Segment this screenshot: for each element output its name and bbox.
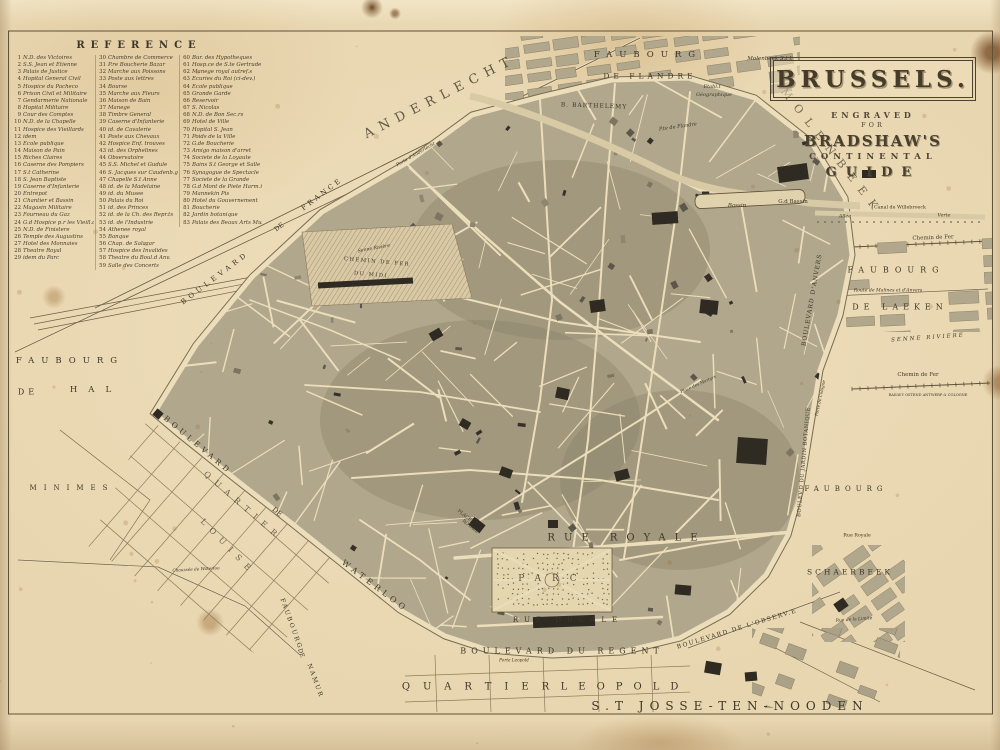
legend-item-number: 31 — [97, 62, 106, 69]
legend-item: 46S. Jacques sur Caudenb.g — [97, 170, 178, 177]
legend-item-number: 32 — [97, 69, 106, 76]
legend-item-label: Chap. de Salazar — [108, 241, 155, 248]
legend-item: 75Bains S.t George et Salle — [181, 162, 262, 169]
legend-item-label: Hospice du Pacheco — [23, 84, 78, 91]
legend-item-label: Magasin Militaire — [23, 205, 72, 212]
legend-item: 4Hopital General Civil — [12, 76, 94, 83]
legend-item-label: Theatre Royal — [23, 248, 61, 255]
legend-item-number: 59 — [97, 263, 106, 270]
legend-item: 80Hotel du Gouvernement — [181, 198, 262, 205]
legend-item-label: Hospice des Vieillards — [23, 127, 84, 134]
legend-item: 27Hotel des Monnaies — [12, 241, 94, 248]
legend-item-number: 56 — [97, 241, 106, 248]
brussels-map-scan: ANDERLECHTFAUBOURGDE FLANDREMolenbeek S.… — [0, 0, 1000, 750]
legend-item-label: Maison de Pain — [23, 148, 65, 155]
legend-item: 71Poids de la Ville — [181, 134, 262, 141]
legend-item-number: 55 — [97, 234, 106, 241]
legend-item: 30Chambre de Commerce — [97, 55, 178, 62]
legend-item-label: Marche aux Fleurs — [108, 91, 160, 98]
legend-item-number: 75 — [181, 162, 190, 169]
legend-item: 38Timbre General — [97, 112, 178, 119]
legend-item: 78G.d Mont de Piete Harm.ie — [181, 184, 262, 191]
legend-item: 20Entrepot — [12, 191, 94, 198]
legend-item: 83Palais des Beaux Arts Musee — [181, 220, 262, 227]
legend-item-number: 77 — [181, 177, 190, 184]
legend-item-label: Athenee royal — [108, 227, 146, 234]
legend-item-label: S.S. Jean et Etienne — [23, 62, 77, 69]
legend-item-number: 41 — [97, 134, 106, 141]
legend-item-number: 27 — [12, 241, 21, 248]
legend-item: 54Athenee royal — [97, 227, 178, 234]
legend-item: 18S. Jean Baptiste — [12, 177, 94, 184]
legend-item-number: 12 — [12, 134, 21, 141]
legend-item: 1N.D. des Victoires — [12, 55, 94, 62]
legend-item: 8Hopital Militaire — [12, 105, 94, 112]
legend-item-number: 15 — [12, 155, 21, 162]
legend-item: 66Reservoir — [181, 98, 262, 105]
legend-item-label: Caserne d'Infanterie — [23, 184, 79, 191]
legend-item-number: 16 — [12, 162, 21, 169]
legend-item-label: Temple des Augustins — [23, 234, 83, 241]
legend-item-number: 51 — [97, 205, 106, 212]
legend-item-number: 35 — [97, 91, 106, 98]
legend-item-label: Prison Civil et Militaire — [23, 91, 87, 98]
legend-item-label: id. de Cavalerie — [108, 127, 151, 134]
legend-item-number: 29 — [12, 255, 21, 262]
legend-item: 79Mannekin Pis — [181, 191, 262, 198]
legend-item: 49id. du Musee — [97, 191, 178, 198]
legend-item-number: 30 — [97, 55, 106, 62]
legend-item-number: 49 — [97, 191, 106, 198]
legend-item-number: 9 — [12, 112, 21, 119]
legend-item-label: N.D. de Finistere — [23, 227, 70, 234]
legend-item-number: 57 — [97, 248, 106, 255]
legend-item-number: 46 — [97, 170, 106, 177]
legend-item-number: 37 — [97, 105, 106, 112]
legend-item-label: Theatre du Boul.d Anv. — [108, 255, 171, 262]
legend-item-number: 78 — [181, 184, 190, 191]
legend-item-number: 83 — [181, 220, 190, 227]
legend-item: 52id. de la Ch. des Repr.ts — [97, 212, 178, 219]
legend-item-number: 10 — [12, 119, 21, 126]
legend-item: 42Hospice Enf. trouves — [97, 141, 178, 148]
legend-item-label: Marche aux Poissons — [108, 69, 166, 76]
legend-item-label: Synagogue de Spectacle — [192, 170, 259, 177]
legend-item-label: Palais des Beaux Arts Musee — [192, 220, 262, 227]
legend-item: 34Bourse — [97, 84, 178, 91]
legend-column-1: 1N.D. des Victoires2S.S. Jean et Etienne… — [11, 55, 95, 263]
reference-legend: REFERENCE 1N.D. des Victoires2S.S. Jean … — [11, 37, 261, 270]
legend-item: 36Maison de Bain — [97, 98, 178, 105]
legend-item: 12idem — [12, 134, 94, 141]
legend-item-number: 43 — [97, 148, 106, 155]
legend-item-label: Hosp.ce de S.te Gertrude — [192, 62, 261, 69]
legend-item-number: 38 — [97, 112, 106, 119]
legend-item-number: 64 — [181, 84, 190, 91]
legend-item: 14Maison de Pain — [12, 148, 94, 155]
legend-item-label: Hotel du Gouvernement — [192, 198, 258, 205]
legend-item-number: 65 — [181, 91, 190, 98]
legend-item: 60Bur. des Hypotheques — [181, 55, 262, 62]
legend-item-number: 18 — [12, 177, 21, 184]
legend-item-label: Banque — [108, 234, 129, 241]
legend-item-label: Mannekin Pis — [192, 191, 229, 198]
legend-item-label: N.D. de Bon Sec.rs — [192, 112, 243, 119]
legend-item-number: 61 — [181, 62, 190, 69]
legend-item: 68N.D. de Bon Sec.rs — [181, 112, 262, 119]
legend-item-label: Jardin botanique — [192, 212, 238, 219]
legend-item-label: Caserne des Pompiers — [23, 162, 84, 169]
title-continental: CONTINENTAL — [768, 152, 978, 162]
legend-item: 53id. de l'Industrie — [97, 220, 178, 227]
legend-item-number: 7 — [12, 98, 21, 105]
legend-item-number: 79 — [181, 191, 190, 198]
legend-item-number: 72 — [181, 141, 190, 148]
legend-item-label: Bur. des Hypotheques — [192, 55, 252, 62]
legend-item: 28Theatre Royal — [12, 248, 94, 255]
legend-item-number: 19 — [12, 184, 21, 191]
legend-item-number: 20 — [12, 191, 21, 198]
legend-item-label: Hotel des Monnaies — [23, 241, 77, 248]
legend-item: 9Cour des Comptes — [12, 112, 94, 119]
legend-item-number: 69 — [181, 119, 190, 126]
legend-item-label: Entrepot — [23, 191, 47, 198]
legend-item: 69Hotel de Ville — [181, 119, 262, 126]
legend-item-label: Manege — [108, 105, 130, 112]
legend-item-label: idem du Parc — [23, 255, 59, 262]
legend-item: 6Prison Civil et Militaire — [12, 91, 94, 98]
legend-item-label: S. Nicolas — [192, 105, 219, 112]
legend-item-number: 28 — [12, 248, 21, 255]
legend-item-label: Gendarmerie Nationale — [23, 98, 87, 105]
legend-item: 23Fourneau du Gaz — [12, 212, 94, 219]
legend-item-label: Hopital S. Jean — [192, 127, 233, 134]
legend-item-label: G.de Boucherie — [192, 141, 234, 148]
legend-item-label: Amigo maison d'arret — [192, 148, 251, 155]
legend-item: 11Hospice des Vieillards — [12, 127, 94, 134]
map-title-frame: BRUSSELS. — [773, 60, 973, 98]
legend-item: 51id. des Princes — [97, 205, 178, 212]
legend-item: 55Banque — [97, 234, 178, 241]
legend-item-label: Ecole publique — [192, 84, 233, 91]
legend-item-label: Timbre General — [108, 112, 151, 119]
legend-item-label: Manege royal autref.s — [192, 69, 252, 76]
legend-item-number: 24 — [12, 220, 21, 227]
legend-item: 57Hospice des Invalides — [97, 248, 178, 255]
title-engraved: ENGRAVED — [768, 110, 978, 120]
legend-item-label: Hospice Enf. trouves — [108, 141, 165, 148]
legend-item-number: 81 — [181, 205, 190, 212]
legend-item-label: id. de la Madelaine — [108, 184, 160, 191]
legend-item-label: S. Jacques sur Caudenb.g — [108, 170, 178, 177]
legend-item: 40id. de Cavalerie — [97, 127, 178, 134]
legend-item: 82Jardin botanique — [181, 212, 262, 219]
legend-item: 72G.de Boucherie — [181, 141, 262, 148]
legend-item: 76Synagogue de Spectacle — [181, 170, 262, 177]
legend-item: 64Ecole publique — [181, 84, 262, 91]
legend-item-number: 44 — [97, 155, 106, 162]
legend-item: 3Palais de Justice — [12, 69, 94, 76]
legend-item-label: id. des Orphelines — [108, 148, 158, 155]
legend-item-number: 42 — [97, 141, 106, 148]
map-title: BRUSSELS. — [776, 66, 970, 93]
legend-item: 24G.d Hospice p.r les Vieill.ds — [12, 220, 94, 227]
legend-item: 47Chapelle S.t Anne — [97, 177, 178, 184]
legend-column-3: 60Bur. des Hypotheques61Hosp.ce de S.te … — [179, 55, 263, 227]
legend-item-number: 40 — [97, 127, 106, 134]
legend-item: 77Societe de la Grande — [181, 177, 262, 184]
legend-item-number: 47 — [97, 177, 106, 184]
legend-item-number: 25 — [12, 227, 21, 234]
legend-item: 81Boucherie — [181, 205, 262, 212]
legend-item-label: Bains S.t George et Salle — [192, 162, 260, 169]
legend-item-label: Hospice des Invalides — [108, 248, 168, 255]
legend-item-number: 53 — [97, 220, 106, 227]
legend-item-label: Riches Claires — [23, 155, 62, 162]
legend-item-label: N.D. de la Chapelle — [23, 119, 76, 126]
legend-item-number: 11 — [12, 127, 21, 134]
legend-item: 62Manege royal autref.s — [181, 69, 262, 76]
legend-item-label: S. Jean Baptiste — [23, 177, 66, 184]
title-bradshaws: BRADSHAW'S — [768, 132, 978, 150]
legend-item-label: Reservoir — [192, 98, 218, 105]
legend-item-number: 22 — [12, 205, 21, 212]
legend-item: 35Marche aux Fleurs — [97, 91, 178, 98]
title-guide: GUIDE — [768, 165, 978, 180]
legend-item-number: 80 — [181, 198, 190, 205]
legend-item-number: 52 — [97, 212, 106, 219]
legend-item: 19Caserne d'Infanterie — [12, 184, 94, 191]
legend-item-number: 5 — [12, 84, 21, 91]
legend-item-label: Chambre de Commerce — [108, 55, 173, 62]
legend-item-number: 73 — [181, 148, 190, 155]
legend-item: 65Grande Garde — [181, 91, 262, 98]
legend-item-number: 4 — [12, 76, 21, 83]
legend-item-label: idem — [23, 134, 36, 141]
legend-item: 32Marche aux Poissons — [97, 69, 178, 76]
legend-item-number: 23 — [12, 212, 21, 219]
legend-title: REFERENCE — [11, 37, 261, 55]
legend-item-label: Poste aux lettres — [108, 76, 154, 83]
legend-item: 15Riches Claires — [12, 155, 94, 162]
legend-item-number: 17 — [12, 170, 21, 177]
legend-item: 58Theatre du Boul.d Anv. — [97, 255, 178, 262]
legend-item-number: 70 — [181, 127, 190, 134]
legend-item-number: 60 — [181, 55, 190, 62]
legend-item-number: 13 — [12, 141, 21, 148]
legend-item: 13Ecole publique — [12, 141, 94, 148]
legend-item-number: 68 — [181, 112, 190, 119]
legend-item-number: 48 — [97, 184, 106, 191]
title-cartouche: BRUSSELS. ENGRAVED FOR BRADSHAW'S CONTIN… — [768, 60, 978, 200]
legend-item: 25N.D. de Finistere — [12, 227, 94, 234]
legend-item-number: 45 — [97, 162, 106, 169]
legend-item-label: id. de la Ch. des Repr.ts — [108, 212, 173, 219]
legend-item: 74Societe de la Loyaute — [181, 155, 262, 162]
legend-item-label: Cour des Comptes — [23, 112, 73, 119]
legend-item-number: 34 — [97, 84, 106, 91]
legend-item-number: 2 — [12, 62, 21, 69]
legend-column-2: 30Chambre de Commerce31P.re Boucherie Ba… — [95, 55, 179, 270]
legend-item-label: Caserne d'Infanterie — [108, 119, 164, 126]
legend-item-label: Societe de la Grande — [192, 177, 249, 184]
legend-item: 2S.S. Jean et Etienne — [12, 62, 94, 69]
legend-item-label: Poids de la Ville — [192, 134, 235, 141]
legend-item-label: Salle des Concerts — [108, 263, 159, 270]
legend-item-number: 21 — [12, 198, 21, 205]
legend-item-number: 63 — [181, 76, 190, 83]
legend-item-number: 76 — [181, 170, 190, 177]
legend-item: 70Hopital S. Jean — [181, 127, 262, 134]
legend-item-number: 3 — [12, 69, 21, 76]
legend-item: 33Poste aux lettres — [97, 76, 178, 83]
legend-item-number: 50 — [97, 198, 106, 205]
legend-item-label: Ecuries du Roi (ci-dev.) — [192, 76, 255, 83]
legend-item: 16Caserne des Pompiers — [12, 162, 94, 169]
legend-columns: 1N.D. des Victoires2S.S. Jean et Etienne… — [11, 55, 261, 270]
legend-item: 43id. des Orphelines — [97, 148, 178, 155]
legend-item: 10N.D. de la Chapelle — [12, 119, 94, 126]
legend-item-label: G.d Mont de Piete Harm.ie — [192, 184, 262, 191]
legend-item-label: id. du Musee — [108, 191, 143, 198]
legend-item-number: 26 — [12, 234, 21, 241]
legend-item-label: Societe de la Loyaute — [192, 155, 251, 162]
legend-item: 44Observatoire — [97, 155, 178, 162]
legend-item: 26Temple des Augustins — [12, 234, 94, 241]
legend-item-label: N.D. des Victoires — [23, 55, 72, 62]
legend-item-label: Hotel de Ville — [192, 119, 229, 126]
legend-item-label: Fourneau du Gaz — [23, 212, 70, 219]
legend-item-number: 6 — [12, 91, 21, 98]
legend-item-label: Hopital Militaire — [23, 105, 69, 112]
legend-item-number: 71 — [181, 134, 190, 141]
legend-item: 31P.re Boucherie Bazar — [97, 62, 178, 69]
legend-item-label: id. des Princes — [108, 205, 148, 212]
legend-item-number: 62 — [181, 69, 190, 76]
legend-item-label: Palais de Justice — [23, 69, 68, 76]
legend-item-number: 66 — [181, 98, 190, 105]
legend-item: 7Gendarmerie Nationale — [12, 98, 94, 105]
legend-item-label: Poste aux Chevaux — [108, 134, 160, 141]
legend-item: 17S.t Catherine — [12, 170, 94, 177]
legend-item-number: 39 — [97, 119, 106, 126]
legend-item: 39Caserne d'Infanterie — [97, 119, 178, 126]
legend-item-label: Palais du Roi — [108, 198, 143, 205]
legend-item-number: 82 — [181, 212, 190, 219]
legend-item-label: S.S. Michel et Gudule — [108, 162, 167, 169]
legend-item: 73Amigo maison d'arret — [181, 148, 262, 155]
legend-item: 67S. Nicolas — [181, 105, 262, 112]
legend-item: 37Manege — [97, 105, 178, 112]
legend-item-number: 54 — [97, 227, 106, 234]
legend-item: 5Hospice du Pacheco — [12, 84, 94, 91]
legend-item-label: P.re Boucherie Bazar — [108, 62, 165, 69]
legend-item-number: 33 — [97, 76, 106, 83]
legend-item-label: Boucherie — [192, 205, 220, 212]
legend-item: 21Chantier et Bassin — [12, 198, 94, 205]
legend-item: 61Hosp.ce de S.te Gertrude — [181, 62, 262, 69]
legend-item-label: Maison de Bain — [108, 98, 150, 105]
legend-item-number: 67 — [181, 105, 190, 112]
legend-item: 22Magasin Militaire — [12, 205, 94, 212]
legend-item: 45S.S. Michel et Gudule — [97, 162, 178, 169]
legend-item: 48id. de la Madelaine — [97, 184, 178, 191]
legend-item-number: 8 — [12, 105, 21, 112]
legend-item-number: 1 — [12, 55, 21, 62]
legend-item-label: Bourse — [108, 84, 127, 91]
legend-item-label: Hopital General Civil — [23, 76, 81, 83]
legend-item: 50Palais du Roi — [97, 198, 178, 205]
legend-item: 59Salle des Concerts — [97, 263, 178, 270]
legend-item-number: 36 — [97, 98, 106, 105]
title-for: FOR — [768, 121, 978, 129]
legend-item: 29idem du Parc — [12, 255, 94, 262]
legend-item-label: Chapelle S.t Anne — [108, 177, 157, 184]
legend-item-label: Observatoire — [108, 155, 144, 162]
legend-item: 41Poste aux Chevaux — [97, 134, 178, 141]
legend-item-label: id. de l'Industrie — [108, 220, 153, 227]
legend-item-label: Grande Garde — [192, 91, 231, 98]
legend-item-label: G.d Hospice p.r les Vieill.ds — [23, 220, 94, 227]
legend-item-label: Chantier et Bassin — [23, 198, 74, 205]
legend-item-number: 14 — [12, 148, 21, 155]
legend-item-number: 58 — [97, 255, 106, 262]
legend-item-label: S.t Catherine — [23, 170, 59, 177]
legend-item-number: 74 — [181, 155, 190, 162]
legend-item: 56Chap. de Salazar — [97, 241, 178, 248]
legend-item-label: Ecole publique — [23, 141, 64, 148]
legend-item: 63Ecuries du Roi (ci-dev.) — [181, 76, 262, 83]
